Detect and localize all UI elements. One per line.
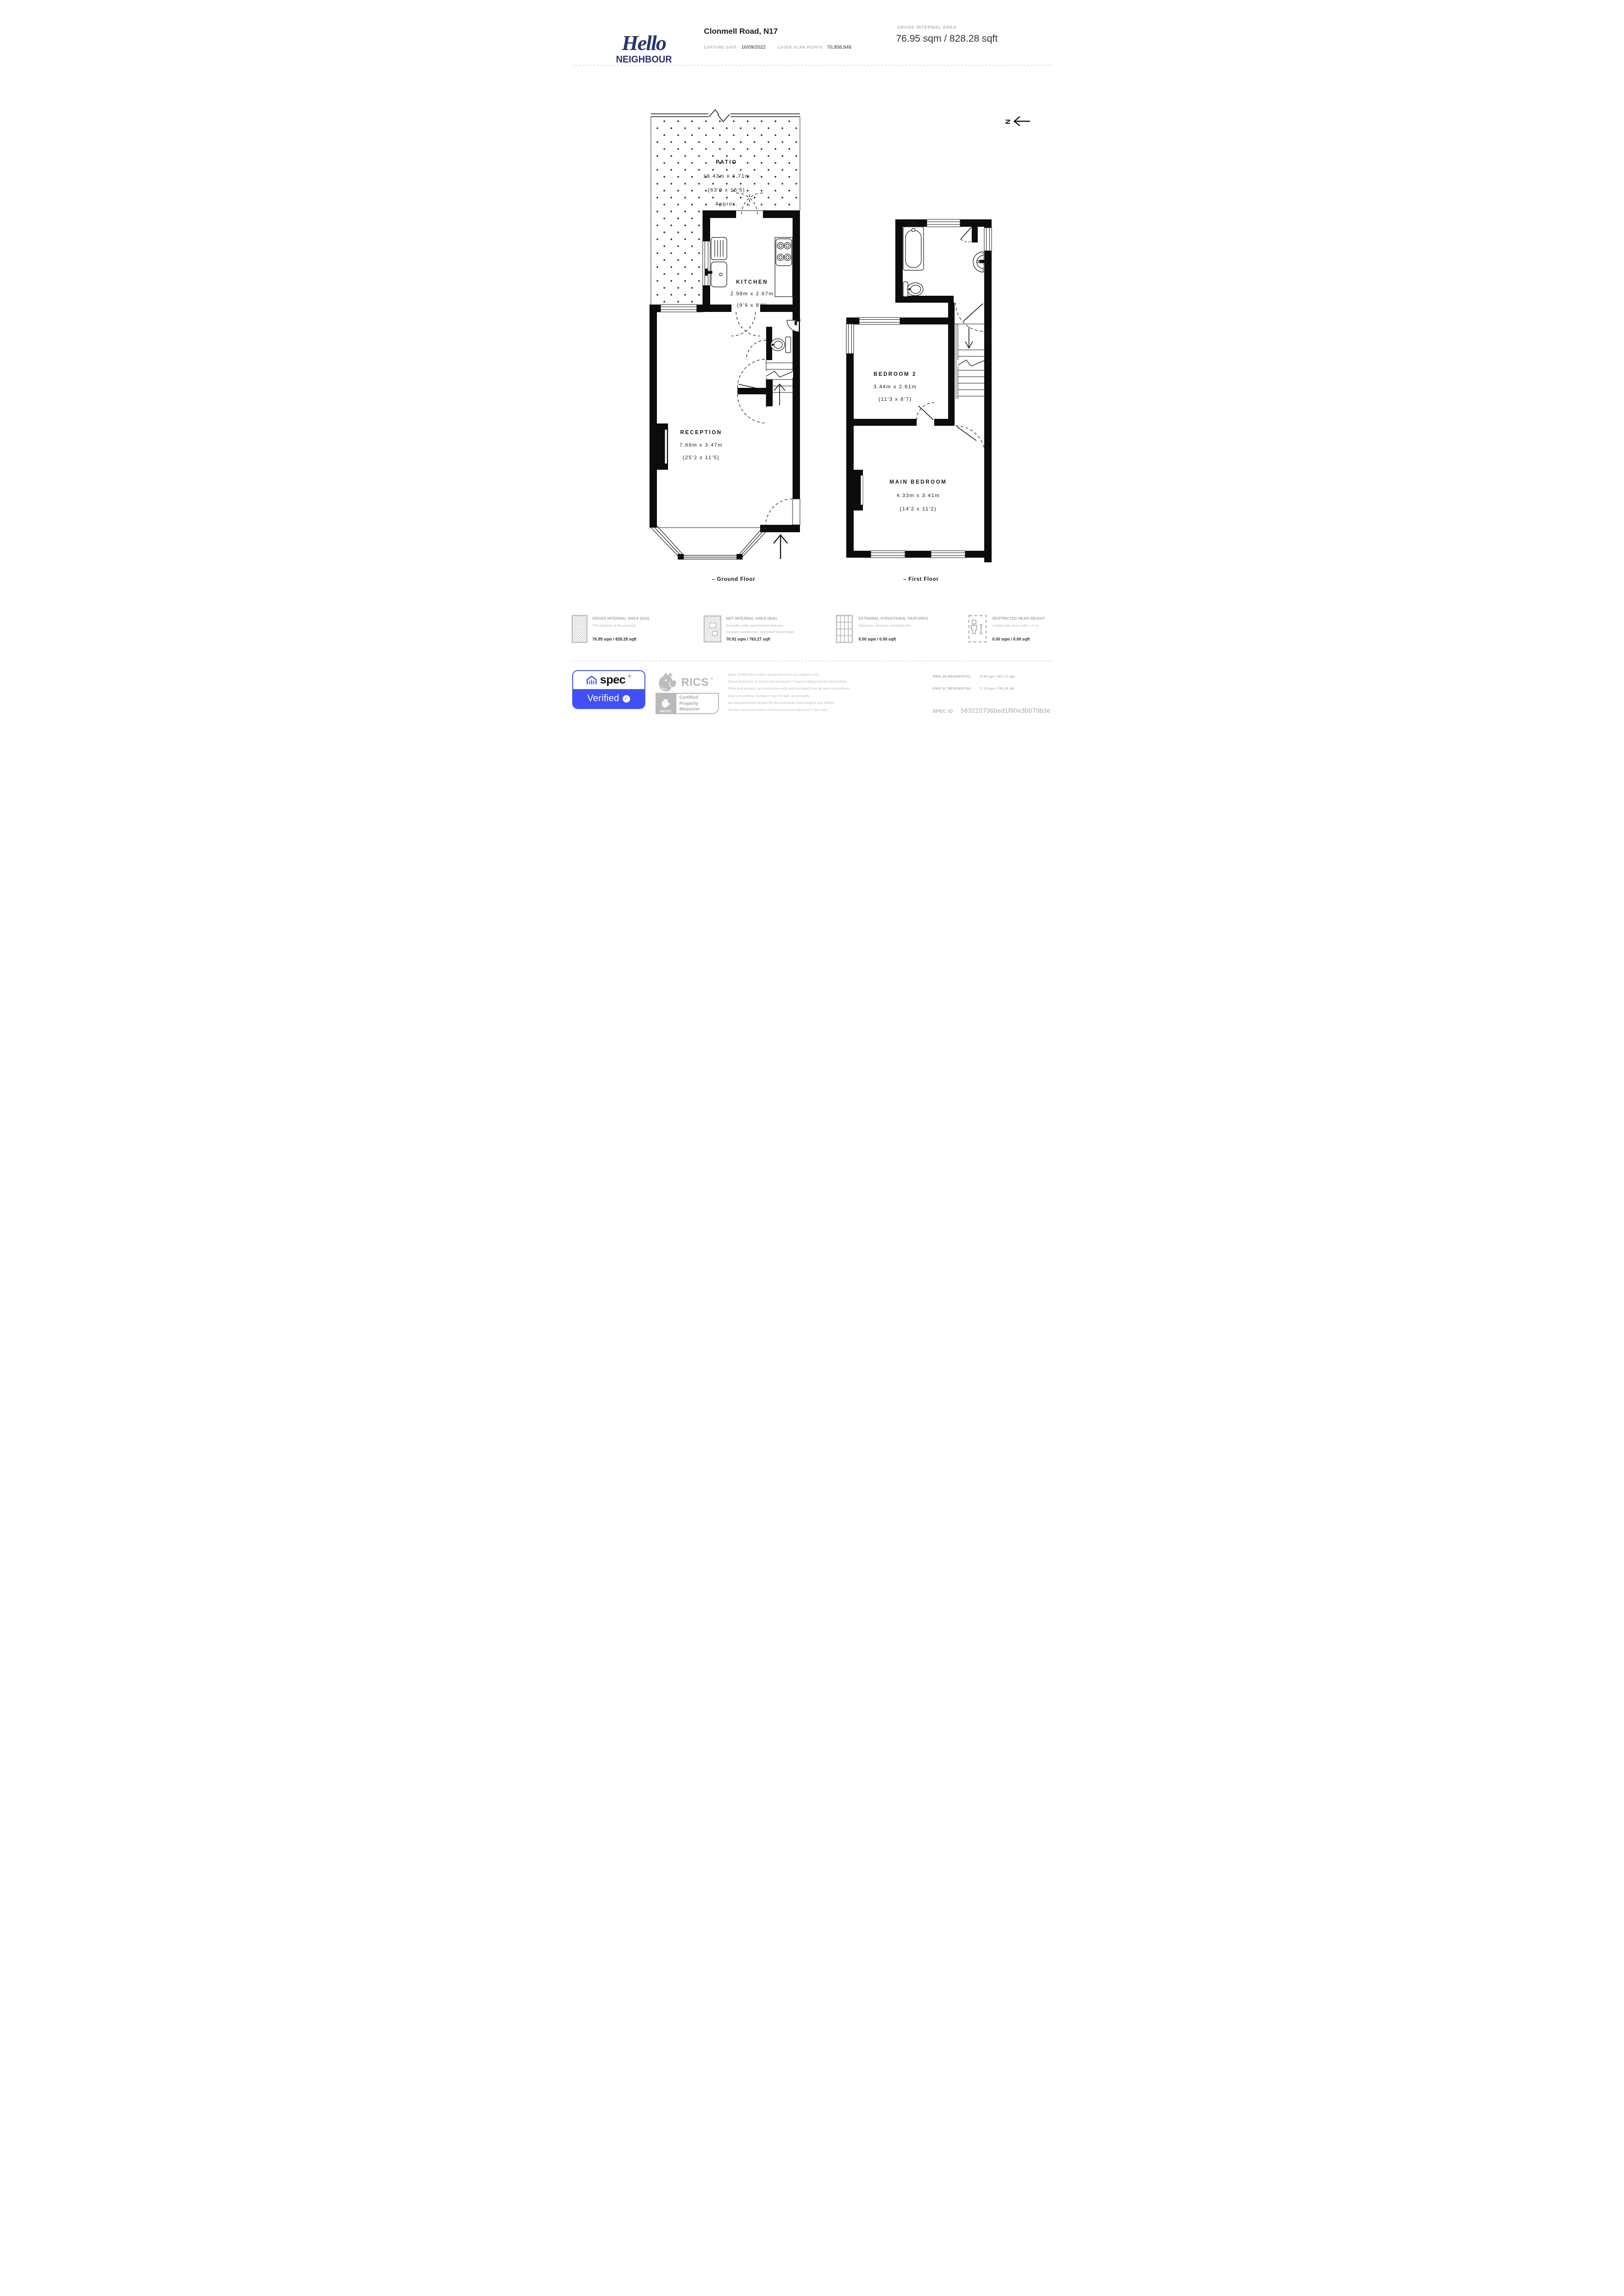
ipms-3c-label: IPMS 3C RESIDENTIAL	[933, 686, 977, 691]
legend-nia-value: 70.91 sqm / 763.27 sqft	[726, 637, 770, 641]
ipms-3c-value: 71.18 sqm / 766.18 sqft	[979, 686, 1014, 691]
legend-external-value: 0.00 sqm / 0.00 sqft	[859, 637, 896, 641]
legend-item-gia: GROSS INTERNAL AREA (GIA) The footprint …	[593, 616, 708, 630]
patio-name: PATIO	[703, 156, 750, 169]
main-bedroom-metric: 4.33m x 3.41m	[890, 489, 947, 503]
rics-mini-lion-icon	[660, 698, 671, 709]
legend-external-title: EXTERNAL STRUCTURAL FEATURES	[859, 616, 974, 621]
north-arrow-icon: N	[1004, 117, 1030, 126]
bedroom2-label: BEDROOM 2 3.44m x 2.61m (11'3 x 8'7)	[874, 368, 917, 406]
main-bedroom-label: MAIN BEDROOM 4.33m x 3.41m (14'2 x 11'2)	[890, 476, 947, 516]
north-label: N	[1004, 119, 1012, 124]
legend-item-restricted: RESTRICTED HEAD HEIGHT Limited use area …	[993, 616, 1068, 630]
disclaimer-line: Plots and gardens are illustrative only …	[728, 685, 881, 692]
patio-imperial: (63'9 x 15'5)	[703, 183, 750, 197]
wc-door-arc	[746, 340, 766, 360]
gross-internal-area-value: 76.95 sqm / 828.28 sqft	[896, 33, 998, 44]
capture-date-value: 16/09/2022	[741, 44, 766, 50]
spec-id-row: SPEC ID 563220706bed1f80e3b070b3e	[933, 707, 1051, 715]
legend-external-desc: Balconies, terraces, verandas etc.	[859, 623, 974, 628]
spec-verified-badge: spec ® Verified ✓	[572, 670, 645, 709]
rics-lion-icon	[656, 672, 680, 693]
legend-restricted-value: 0.00 sqm / 0.00 sqft	[993, 637, 1030, 641]
spec-brand-text: spec	[600, 673, 625, 687]
reception-name: RECEPTION	[680, 427, 723, 439]
kitchen-metric: 2.98m x 2.67m	[731, 288, 774, 300]
certified-measurer-text: Certified Property Measurer	[676, 693, 719, 714]
disclaimer-text: Spec Verified floor plans are produced i…	[728, 671, 881, 713]
ipms-3c-row: IPMS 3C RESIDENTIAL 71.18 sqm / 766.18 s…	[933, 684, 1015, 692]
legend-gia-title: GROSS INTERNAL AREA (GIA)	[593, 616, 708, 621]
rics-logo: RICS ®	[656, 672, 713, 693]
rics-mini-logo-box: RICS®	[656, 693, 676, 714]
ipms-block: IPMS 3B RESIDENTIAL 74.45 sqm / 801.37 s…	[933, 672, 1015, 696]
hob-icon	[775, 237, 793, 297]
legend-nia-desc1: Excludes walls and external features	[726, 623, 842, 628]
reception-label: RECEPTION 7.66m x 3.47m (25'2 x 11'5)	[680, 427, 723, 464]
rics-mini-label: RICS®	[660, 709, 671, 713]
laser-scan-label: LASER SCAN POINTS	[778, 45, 823, 50]
rics-registered-mark: ®	[711, 677, 713, 681]
bathroom-basin-icon	[973, 252, 984, 272]
bay-window	[651, 524, 769, 560]
disclaimer-line: Spec Verified floor plans are produced i…	[728, 671, 881, 678]
reception-metric: 7.66m x 3.47m	[680, 439, 723, 452]
spec-verified-text: Verified	[587, 693, 619, 704]
stairs-down	[955, 324, 984, 399]
reception-imperial: (25'2 x 11'5)	[680, 452, 723, 464]
disclaimer-line: Royal Institution of Chartered Surveyors…	[728, 678, 881, 685]
ipms-3b-row: IPMS 3B RESIDENTIAL 74.45 sqm / 801.37 s…	[933, 672, 1015, 680]
bathroom-door	[956, 303, 984, 331]
kitchen-imperial: (9'9 x 8'9)	[731, 300, 774, 311]
disclaimer-line: are the maximum points of measurements c…	[728, 706, 881, 713]
disclaimer-line: Due to rounding, numbers may not add up …	[728, 692, 881, 699]
bedroom2-door	[917, 403, 934, 420]
spec-id-label: SPEC ID	[933, 709, 953, 714]
main-bedroom-name: MAIN BEDROOM	[890, 476, 947, 489]
ipms-3b-label: IPMS 3B RESIDENTIAL	[933, 674, 977, 678]
legend-gia-desc: The footprint of the property	[593, 623, 708, 628]
hatched-area-icon	[572, 616, 587, 642]
patio-note: Approx.	[703, 197, 750, 211]
cupboard-door	[961, 227, 972, 242]
legend-nia-title: NET INTERNAL AREA (NIA)	[726, 616, 842, 621]
wc-basin-icon	[787, 319, 800, 332]
ground-floor-caption: – Ground Floor	[712, 577, 755, 582]
bathroom-toilet-icon	[903, 282, 923, 297]
logo-script-text: Hello	[609, 32, 679, 54]
legend-gia-value: 76.95 sqm / 828.28 sqft	[593, 637, 637, 641]
kitchen-label: KITCHEN 2.98m x 2.67m (9'9 x 8'9)	[731, 277, 774, 311]
spec-id-value: 563220706bed1f80e3b070b3e	[961, 707, 1050, 714]
verified-check-icon: ✓	[623, 695, 630, 703]
rics-certified-measurer-badge: RICS® Certified Property Measurer	[656, 693, 719, 714]
kitchen-door-arcs	[731, 312, 760, 336]
spec-logo: spec ®	[573, 671, 644, 689]
bath-icon	[903, 221, 924, 270]
floorplan-drawing: N	[557, 0, 1068, 722]
bedroom2-imperial: (11'3 x 8'7)	[874, 393, 917, 406]
cert-line2: Property	[680, 701, 718, 707]
front-door-arc	[766, 499, 793, 526]
cert-line3: Measurer	[680, 707, 718, 713]
legend-restricted-desc: Limited use area under 1.5 m	[993, 623, 1068, 628]
hello-neighbour-logo: Hello NEIGHBOUR	[609, 32, 679, 65]
gross-internal-area-label: GROSS INTERNAL AREA	[897, 25, 957, 30]
capture-meta-row: CAPTURE DATE16/09/2022LASER SCAN POINTS7…	[704, 44, 863, 50]
disclaimer-line: All measurements shown for the individua…	[728, 699, 881, 706]
legend-item-external: EXTERNAL STRUCTURAL FEATURES Balconies, …	[859, 616, 974, 630]
main-bedroom-door	[956, 426, 985, 455]
main-bedroom-imperial: (14'2 x 11'2)	[890, 503, 947, 516]
ipms-3b-value: 74.45 sqm / 801.37 sqft	[979, 674, 1014, 678]
wc-toilet-icon	[771, 337, 791, 353]
logo-caps-text: NEIGHBOUR	[612, 55, 676, 65]
laser-scan-value: 70,958,848	[827, 44, 851, 50]
legend-restricted-title: RESTRICTED HEAD HEIGHT	[993, 616, 1068, 621]
legend-item-nia: NET INTERNAL AREA (NIA) Excludes walls a…	[726, 616, 842, 636]
legend-nia-desc2: Includes washrooms, restricted head heig…	[726, 630, 842, 634]
bedroom2-metric: 3.44m x 2.61m	[874, 381, 917, 393]
bedroom2-name: BEDROOM 2	[874, 368, 917, 381]
cert-line1: Certified	[680, 695, 718, 701]
entrance-arrow-icon	[774, 535, 787, 559]
patio-metric: 19.43m x 4.71m	[703, 169, 750, 183]
first-floor-caption: – First Floor	[903, 577, 939, 582]
capture-date-label: CAPTURE DATE	[704, 45, 737, 50]
kitchen-name: KITCHEN	[731, 277, 774, 288]
rics-name-text: RICS	[681, 676, 709, 689]
patio-label: PATIO 19.43m x 4.71m (63'9 x 15'5) Appro…	[703, 156, 750, 211]
spec-registered-mark: ®	[628, 674, 631, 678]
property-address: Clonmell Road, N17	[704, 27, 778, 36]
spec-house-icon	[586, 675, 597, 685]
floorplan-page: N	[557, 0, 1068, 722]
spec-verified-row: Verified ✓	[573, 689, 644, 708]
